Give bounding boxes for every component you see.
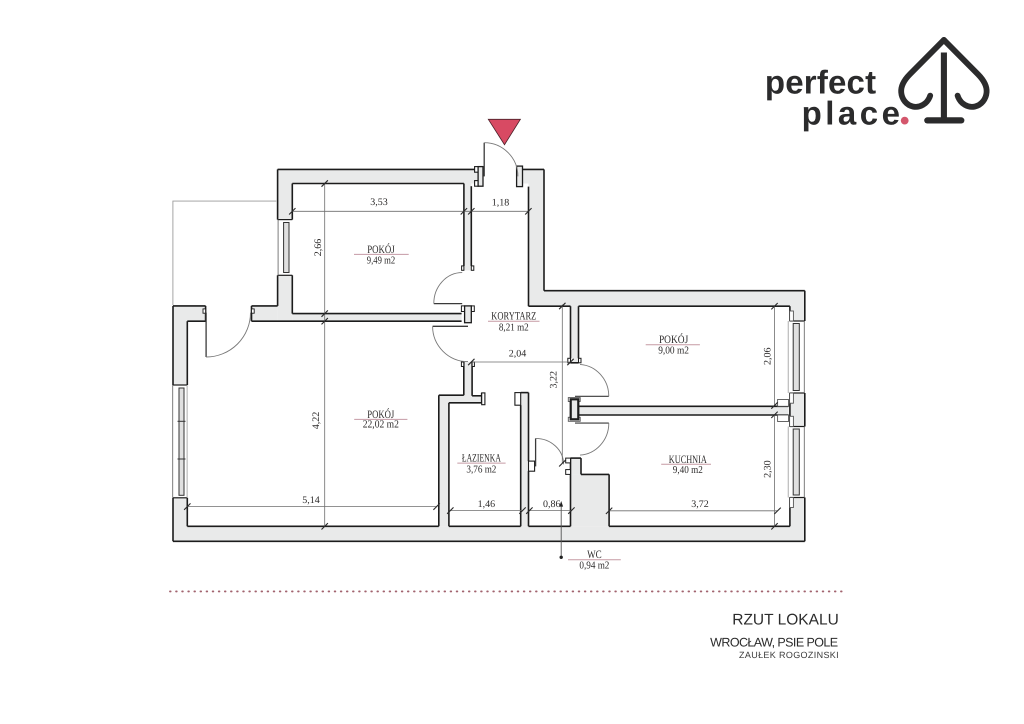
svg-text:4,22: 4,22 [311,412,322,430]
svg-text:place: place [802,95,904,132]
svg-text:0,86: 0,86 [543,499,561,510]
svg-text:WROCŁAW, PSIE POLE: WROCŁAW, PSIE POLE [710,635,838,649]
svg-text:2,04: 2,04 [509,349,527,360]
svg-text:22,02 m2: 22,02 m2 [363,419,399,431]
svg-text:3,53: 3,53 [370,197,388,208]
svg-text:9,00 m2: 9,00 m2 [658,346,689,357]
svg-text:2,30: 2,30 [762,460,773,478]
svg-text:1,46: 1,46 [478,499,496,510]
svg-text:3,76 m2: 3,76 m2 [466,464,496,475]
svg-text:1,18: 1,18 [492,197,510,208]
svg-text:0,94 m2: 0,94 m2 [579,560,609,571]
svg-text:3,72: 3,72 [691,499,709,510]
svg-text:9,49 m2: 9,49 m2 [367,255,395,266]
svg-text:2,66: 2,66 [313,239,324,257]
svg-text:8,21 m2: 8,21 m2 [499,322,529,333]
svg-text:2,06: 2,06 [762,347,773,365]
svg-text:ZAUŁEK ROGOZINSKI: ZAUŁEK ROGOZINSKI [739,650,839,660]
svg-text:RZUT LOKALU: RZUT LOKALU [732,612,839,629]
svg-text:9,40 m2: 9,40 m2 [673,465,703,476]
svg-text:3,22: 3,22 [549,371,560,389]
svg-text:5,14: 5,14 [302,495,320,506]
svg-text:POKÓJ: POKÓJ [659,333,689,346]
